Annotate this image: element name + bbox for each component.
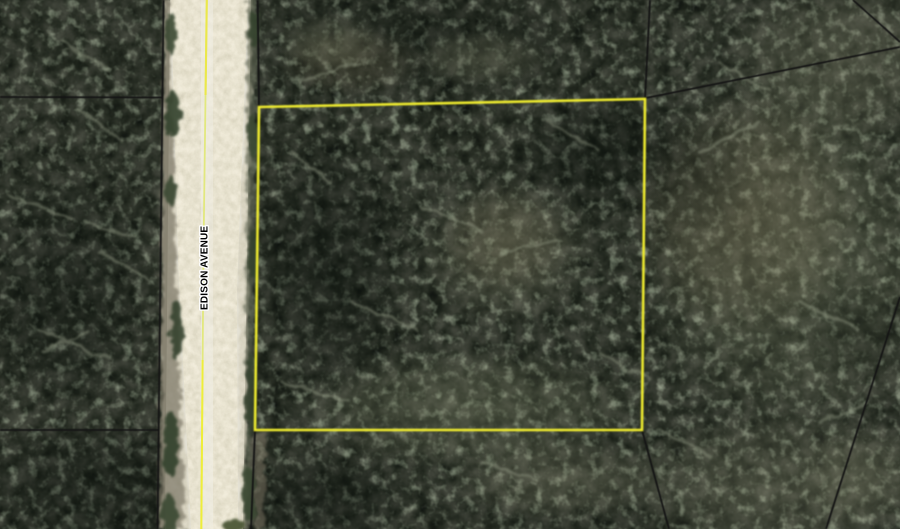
svg-text:EDISON AVENUE: EDISON AVENUE xyxy=(200,226,211,310)
